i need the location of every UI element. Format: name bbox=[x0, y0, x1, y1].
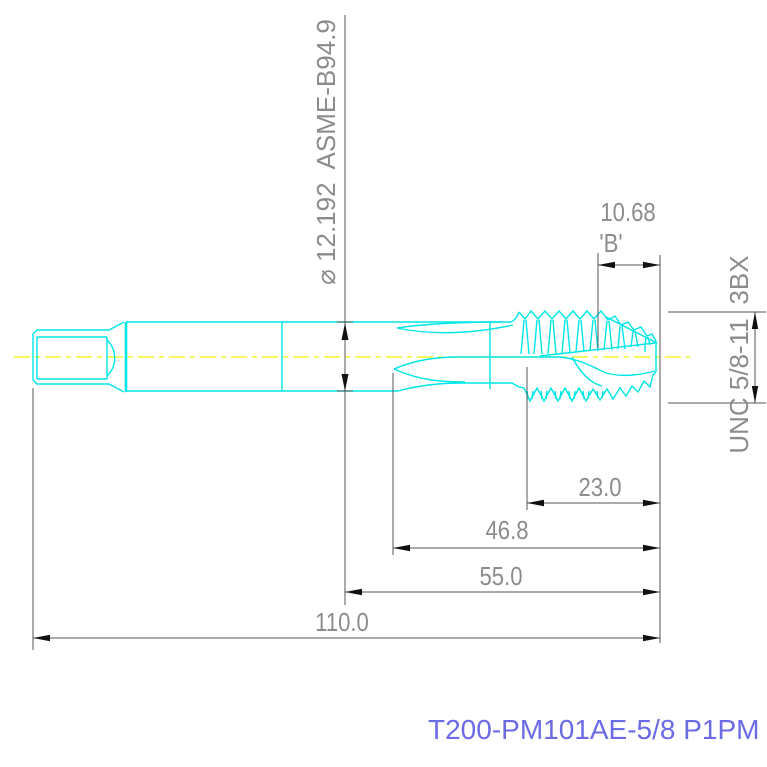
arrow-right-chamfer bbox=[643, 262, 660, 268]
thread-length-label: 23.0 bbox=[578, 474, 621, 500]
arrow-right-46 bbox=[643, 545, 660, 551]
tap-technical-drawing bbox=[0, 0, 767, 767]
arrow-right-55 bbox=[643, 589, 660, 595]
top-flute bbox=[397, 322, 513, 333]
arrow-right-23 bbox=[643, 500, 660, 506]
arrow-left-110 bbox=[33, 635, 50, 641]
shank-diameter-label: ⌀ 12.192 ASME-B94.9 bbox=[313, 19, 339, 285]
arrow-left-23 bbox=[527, 500, 544, 506]
cad-drawing-canvas: ⌀ 12.192 ASME-B94.9 10.68 'B' 3BX UNC 5/… bbox=[0, 0, 767, 767]
arrow-left-46 bbox=[393, 545, 410, 551]
arrow-right-110 bbox=[643, 635, 660, 641]
bottom-flute bbox=[394, 357, 655, 382]
dimension-lines bbox=[33, 15, 766, 650]
arrow-left-55 bbox=[345, 589, 362, 595]
thread-spec-label: UNC 5/8-11 bbox=[726, 318, 752, 453]
overall-length-label: 110.0 bbox=[315, 609, 369, 635]
arrow-up-shank bbox=[342, 323, 349, 340]
dimension-arrowheads bbox=[33, 262, 758, 641]
arrow-down-shank bbox=[342, 374, 349, 391]
thread-crest-bottom bbox=[519, 372, 656, 401]
thread-class-label: 3BX bbox=[726, 255, 752, 304]
flute-length-label: 46.8 bbox=[485, 517, 528, 543]
square-drive-flat-detail bbox=[37, 337, 115, 379]
shank-bottom-edge bbox=[126, 383, 519, 391]
arrow-left-chamfer bbox=[598, 262, 615, 268]
front-length-label: 55.0 bbox=[479, 563, 522, 589]
shank-top-edge bbox=[126, 312, 519, 322]
part-number-label: T200-PM101AE-5/8 P1PM bbox=[428, 716, 760, 744]
chamfer-length-label: 10.68 bbox=[600, 199, 655, 225]
chamfer-ref-label: 'B' bbox=[599, 230, 622, 256]
